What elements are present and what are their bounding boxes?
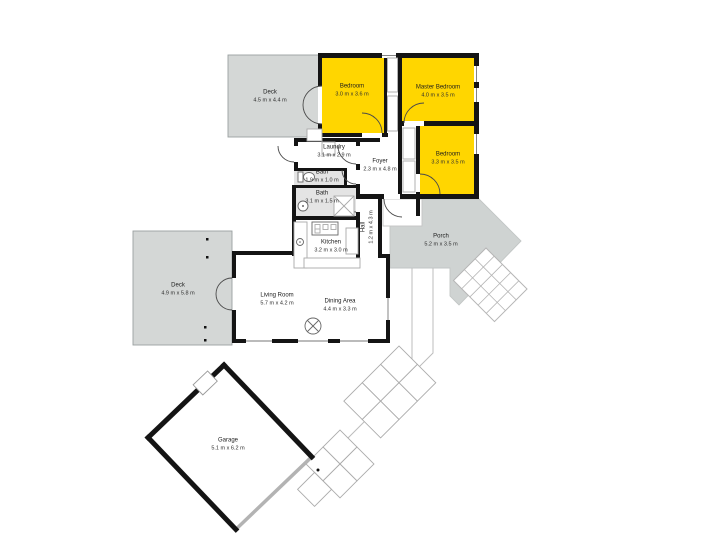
room-label-deck-top: Deck4.5 m x 4.4 m	[253, 90, 286, 105]
room-label-dining-area: Dining Area4.4 m x 3.3 m	[323, 299, 356, 314]
room-label-laundry: Laundry3.1 m x 2.9 m	[317, 145, 350, 160]
room-label-bedroom-top: Bedroom3.0 m x 3.6 m	[335, 84, 368, 99]
room-label-master-bedroom: Master Bedroom4.0 m x 3.5 m	[416, 85, 460, 100]
wood-burner-icon	[305, 318, 321, 334]
room-label-hall: Hall1.2 m x 4.3 m	[361, 210, 376, 243]
room-label-deck-left: Deck4.9 m x 5.8 m	[161, 283, 194, 298]
room-label-bedroom-right: Bedroom3.3 m x 3.5 m	[431, 152, 464, 167]
room-label-bath-small: Bath1.9 m x 1.0 m	[305, 170, 338, 185]
paver-path	[289, 346, 436, 515]
fridge-icon	[346, 228, 358, 254]
room-label-porch: Porch5.2 m x 3.5 m	[424, 234, 457, 249]
peninsula-counter	[304, 258, 360, 268]
room-label-kitchen: Kitchen3.2 m x 3.0 m	[314, 240, 347, 255]
room-label-garage: Garage5.1 m x 6.2 m	[211, 438, 244, 453]
floor-plan-drawing	[0, 0, 702, 535]
room-label-bath-large: Bath3.1 m x 1.5 m	[305, 191, 338, 206]
floor-plan: Deck4.5 m x 4.4 m Bedroom3.0 m x 3.6 m M…	[0, 0, 702, 535]
room-label-foyer: Foyer2.3 m x 4.8 m	[363, 159, 396, 174]
room-label-living-room: Living Room5.7 m x 4.2 m	[260, 293, 293, 308]
